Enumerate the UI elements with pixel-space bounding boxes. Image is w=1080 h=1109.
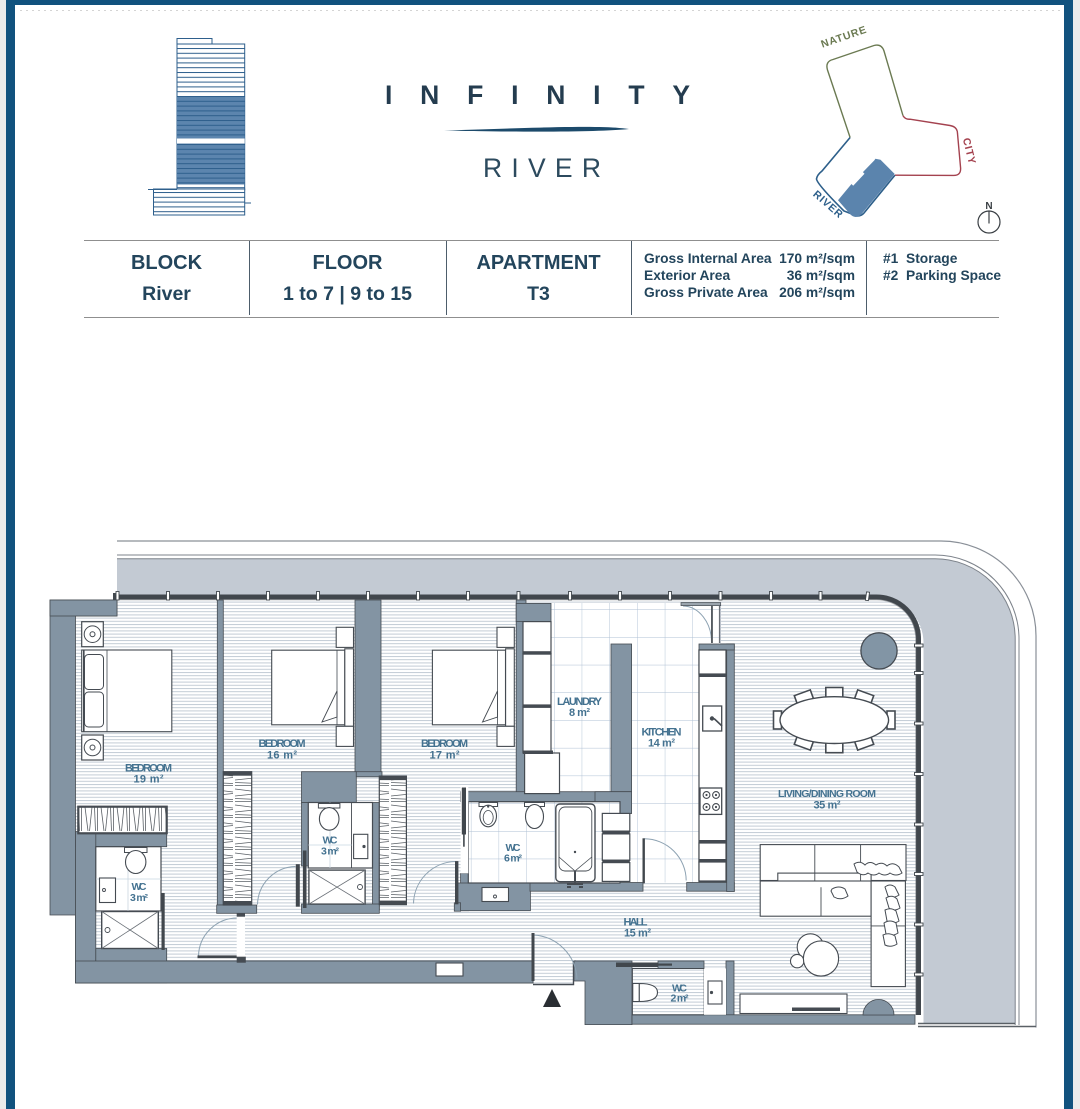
svg-text:15 m²: 15 m² bbox=[624, 928, 651, 940]
svg-text:16 m²: 16 m² bbox=[267, 750, 297, 762]
svg-text:BEDROOM: BEDROOM bbox=[259, 738, 306, 750]
svg-text:2 m²: 2 m² bbox=[671, 993, 690, 1005]
svg-text:8 m²: 8 m² bbox=[569, 707, 590, 719]
svg-text:17 m²: 17 m² bbox=[430, 750, 460, 762]
svg-text:3 m²: 3 m² bbox=[130, 892, 149, 904]
svg-text:3 m²: 3 m² bbox=[321, 846, 340, 858]
svg-text:CITY: CITY bbox=[960, 137, 978, 166]
svg-text:19 m²: 19 m² bbox=[134, 774, 164, 786]
svg-text:INFINITY: INFINITY bbox=[385, 80, 690, 110]
svg-text:NATURE: NATURE bbox=[819, 24, 868, 51]
svg-text:RIVER: RIVER bbox=[483, 153, 601, 183]
svg-text:BEDROOM: BEDROOM bbox=[421, 738, 468, 750]
svg-text:6 m²: 6 m² bbox=[504, 853, 523, 865]
svg-text:LIVING/DINING ROOM: LIVING/DINING ROOM bbox=[778, 788, 876, 800]
svg-text:N: N bbox=[985, 201, 992, 212]
svg-text:35 m²: 35 m² bbox=[814, 800, 841, 812]
svg-text:14 m²: 14 m² bbox=[648, 738, 675, 750]
